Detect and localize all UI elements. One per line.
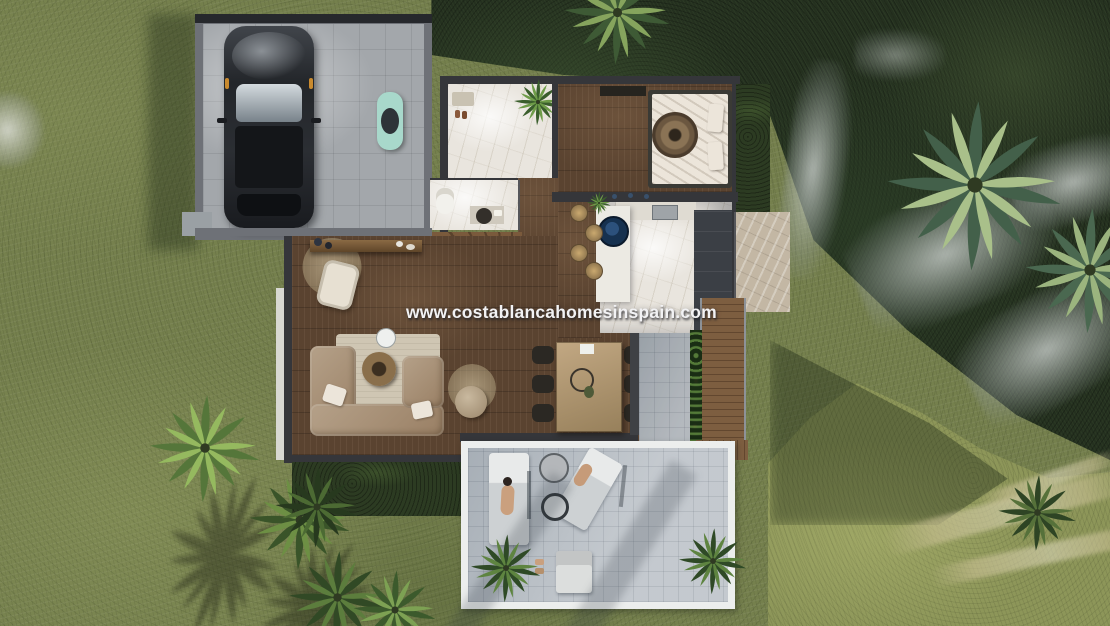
wall-west-living: [284, 236, 292, 462]
pillar-glazing-frame: [630, 333, 639, 435]
car-hood-highlight: [232, 32, 306, 80]
palm-tree-dark: [995, 470, 1080, 555]
aerial-villa-render: www.costablancahomesinspain.com: [0, 0, 1110, 626]
palm-tree-right-edge: [1020, 200, 1110, 340]
bed-pillow: [707, 103, 724, 132]
watermark: www.costablancahomesinspain.com: [406, 302, 717, 323]
stone-patio: [734, 212, 790, 312]
dining-chair: [532, 346, 554, 364]
shoe: [455, 110, 460, 118]
car-windshield: [236, 84, 302, 122]
side-table: [376, 328, 396, 348]
hall-corridor: [518, 178, 558, 238]
ottoman: [556, 551, 592, 593]
towel: [494, 210, 502, 216]
bar-stool: [585, 224, 603, 242]
palm-tree: [350, 565, 440, 626]
person-head: [503, 477, 512, 486]
island-plant: [586, 190, 612, 216]
potted-palm: [676, 524, 750, 598]
bar-stool: [585, 262, 603, 280]
dining-chair: [532, 404, 554, 422]
scooter-seat: [381, 108, 399, 134]
car-mirror-left: [217, 118, 227, 123]
exterior-ledge-west: [276, 288, 284, 460]
palm-tree-top-edge: [560, 0, 675, 70]
coffee-table: [362, 352, 396, 386]
kitchen-sink: [652, 205, 678, 220]
bedroom-dresser: [600, 86, 646, 96]
bed-pillow: [707, 142, 724, 171]
wall-garage-south: [195, 228, 432, 236]
car-rear-window: [237, 194, 301, 216]
ceiling-fan: [652, 112, 698, 158]
hedge-east: [736, 84, 770, 216]
washbasin: [476, 208, 492, 224]
car-signal-left: [225, 78, 229, 89]
dining-table: [556, 342, 622, 432]
palm-tree-by-house: [272, 462, 362, 552]
car-signal-right: [309, 78, 313, 89]
car-mirror-right: [311, 118, 321, 123]
wc: [430, 180, 518, 230]
scooter: [377, 92, 403, 150]
car: [224, 26, 314, 228]
shoe: [462, 111, 467, 119]
garage-roof-edge: [195, 14, 432, 23]
rock-patch-left-edge: [0, 92, 44, 168]
person-on-lounger: [500, 485, 515, 516]
wall-fixture: [644, 194, 649, 199]
car-roof: [235, 126, 303, 188]
toilet: [436, 188, 454, 214]
wall-north: [440, 76, 740, 84]
console-decor-vase: [406, 244, 415, 250]
bar-stool: [570, 244, 588, 262]
console-decor-bowl: [325, 242, 332, 249]
potted-palm: [468, 530, 544, 606]
pouf-chair: [455, 386, 487, 418]
sofa-corner: [402, 356, 444, 408]
doormat: [452, 92, 474, 106]
wall-fixture: [628, 193, 633, 198]
console-decor-bowl: [314, 238, 322, 246]
planter-strip: [690, 330, 702, 458]
bar-stool: [570, 204, 588, 222]
table-centerpiece-plant: [584, 386, 594, 398]
table-placemat: [580, 344, 594, 354]
wall-fixture: [612, 194, 617, 199]
console-decor-vase: [396, 241, 403, 247]
dining-chair: [532, 375, 554, 393]
rock-cliff-patch: [855, 30, 945, 80]
